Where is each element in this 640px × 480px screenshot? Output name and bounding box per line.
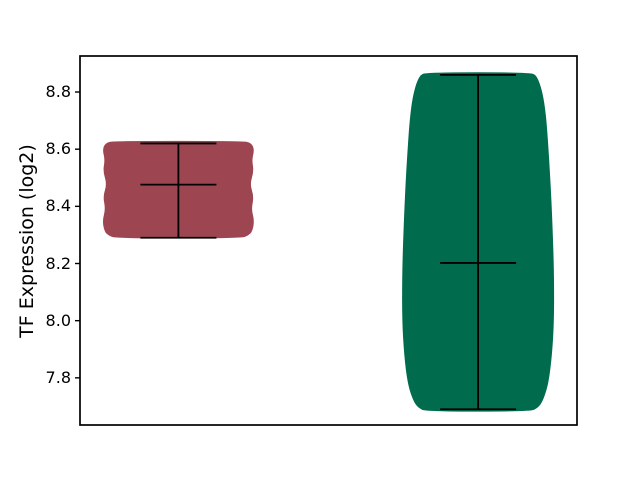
y-axis-label: TF Expression (log2) (16, 144, 38, 338)
y-tick-label: 8.8 (31, 82, 71, 102)
violin-plot-canvas (0, 0, 640, 480)
figure: TF Expression (log2) 8.88.68.48.28.07.8 (0, 0, 640, 480)
y-tick-label: 8.0 (31, 311, 71, 331)
y-tick-label: 8.6 (31, 139, 71, 159)
y-tick-label: 7.8 (31, 368, 71, 388)
y-tick-label: 8.2 (31, 254, 71, 274)
y-tick-label: 8.4 (31, 196, 71, 216)
